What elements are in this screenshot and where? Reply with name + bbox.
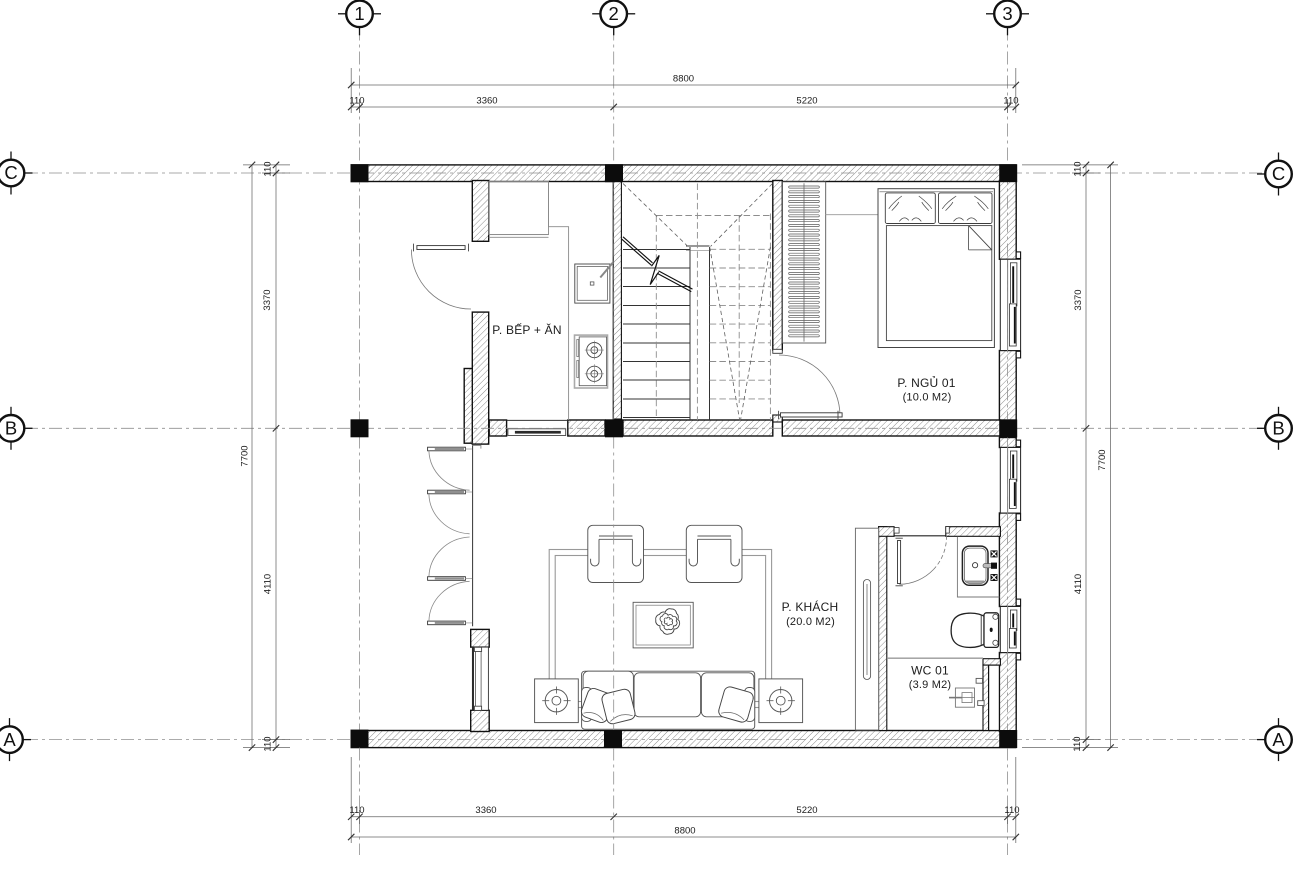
svg-text:5220: 5220	[796, 805, 817, 816]
svg-text:A: A	[3, 729, 16, 750]
svg-text:P. BẾP + ĂN: P. BẾP + ĂN	[492, 322, 561, 337]
svg-text:8800: 8800	[673, 74, 694, 85]
svg-text:110: 110	[349, 96, 364, 107]
svg-text:5220: 5220	[796, 96, 817, 107]
svg-text:B: B	[1272, 418, 1284, 439]
svg-text:(3.9 M2): (3.9 M2)	[909, 679, 952, 691]
svg-text:P. KHÁCH: P. KHÁCH	[782, 599, 839, 614]
svg-text:3360: 3360	[476, 96, 497, 107]
svg-text:7700: 7700	[1097, 449, 1108, 470]
svg-text:WC 01: WC 01	[911, 664, 949, 678]
svg-text:110: 110	[349, 805, 364, 816]
svg-text:110: 110	[1003, 96, 1018, 107]
svg-text:7700: 7700	[240, 445, 251, 466]
svg-text:C: C	[1272, 163, 1285, 184]
svg-text:3: 3	[1002, 3, 1012, 24]
svg-text:3370: 3370	[1073, 289, 1084, 310]
svg-text:C: C	[4, 162, 17, 183]
svg-text:2: 2	[609, 3, 619, 24]
svg-text:4110: 4110	[1073, 574, 1084, 594]
svg-text:4110: 4110	[263, 574, 274, 594]
svg-text:(20.0 M2): (20.0 M2)	[786, 616, 835, 628]
svg-text:110: 110	[263, 736, 274, 751]
svg-text:110: 110	[263, 161, 274, 176]
svg-text:(10.0 M2): (10.0 M2)	[903, 392, 952, 404]
svg-text:A: A	[1272, 729, 1285, 750]
svg-text:8800: 8800	[674, 826, 695, 837]
svg-text:110: 110	[1073, 161, 1084, 176]
svg-text:1: 1	[354, 3, 364, 24]
svg-text:P. NGỦ 01: P. NGỦ 01	[897, 375, 955, 390]
svg-text:110: 110	[1072, 736, 1083, 751]
svg-text:110: 110	[1004, 805, 1019, 816]
svg-text:B: B	[5, 418, 17, 439]
svg-text:3360: 3360	[475, 805, 496, 816]
svg-text:3370: 3370	[262, 289, 273, 310]
